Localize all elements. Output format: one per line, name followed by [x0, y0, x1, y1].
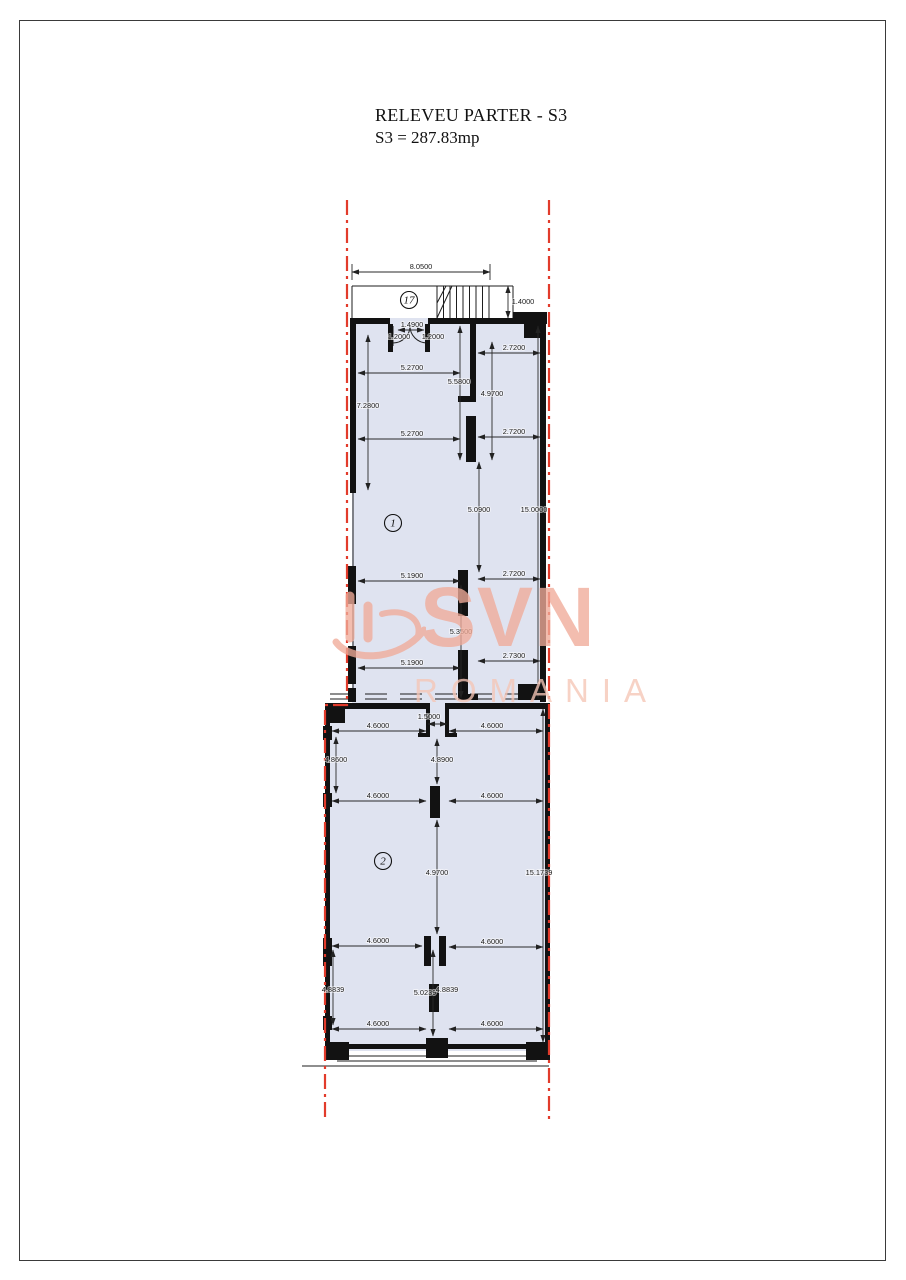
dimension-label: 4.9700: [426, 868, 449, 877]
dimension-label: 5.0239: [414, 988, 437, 997]
dimension-label: 5.0900: [468, 505, 491, 514]
dimension-label: 4.6000: [481, 937, 504, 946]
svg-text:2: 2: [380, 856, 386, 868]
dimension-label: 4.6000: [367, 721, 390, 730]
dimension-label: 15.0000: [521, 505, 548, 514]
dimension-label: 4.6000: [367, 936, 390, 945]
dimension-label: 4.6000: [367, 791, 390, 800]
dimension-label: 1.2000: [422, 332, 445, 341]
dimension-label: 4.8600: [325, 755, 348, 764]
dimension-label: 4.6000: [367, 1019, 390, 1028]
dimension-label: 4.6000: [481, 721, 504, 730]
svg-text:1: 1: [390, 518, 396, 530]
dimension-label: 5.2700: [401, 363, 424, 372]
dimension-label: 1.2000: [388, 332, 411, 341]
dimension-label: 15.1739: [526, 868, 553, 877]
dimension-label: 1.4900: [401, 320, 424, 329]
dimension-label: 1.4000: [512, 297, 535, 306]
dimension-label: 2.7300: [503, 651, 526, 660]
floor-plan-svg: 8.05001.40001.49001.20001.20002.72005.27…: [0, 0, 906, 1280]
dimension-label: 4.8839: [436, 985, 459, 994]
dimension-label: 2.7200: [503, 569, 526, 578]
dimension-label: 2.7200: [503, 343, 526, 352]
room-label: 17: [401, 292, 418, 309]
dimension-label: 5.1900: [401, 658, 424, 667]
drawing-sheet: { "page": { "title_line1": "RELEVEU PART…: [0, 0, 906, 1280]
dimension-label: 5.3500: [450, 627, 473, 636]
dimension-label: 8.0500: [410, 262, 433, 271]
dimension-label: 4.9700: [481, 389, 504, 398]
dimension-label: 4.6000: [481, 791, 504, 800]
dimension-label: 4.6000: [481, 1019, 504, 1028]
dimension-label: 5.2700: [401, 429, 424, 438]
dimension-label: 1.5000: [418, 712, 441, 721]
dimension-label: 7.2800: [357, 401, 380, 410]
dimension-label: 2.7200: [503, 427, 526, 436]
dimension-label: 4.8839: [322, 985, 345, 994]
dimension-label: 5.5800: [448, 377, 471, 386]
dimension-label: 5.1900: [401, 571, 424, 580]
svg-text:17: 17: [404, 295, 416, 307]
dimension-label: 4.8900: [431, 755, 454, 764]
